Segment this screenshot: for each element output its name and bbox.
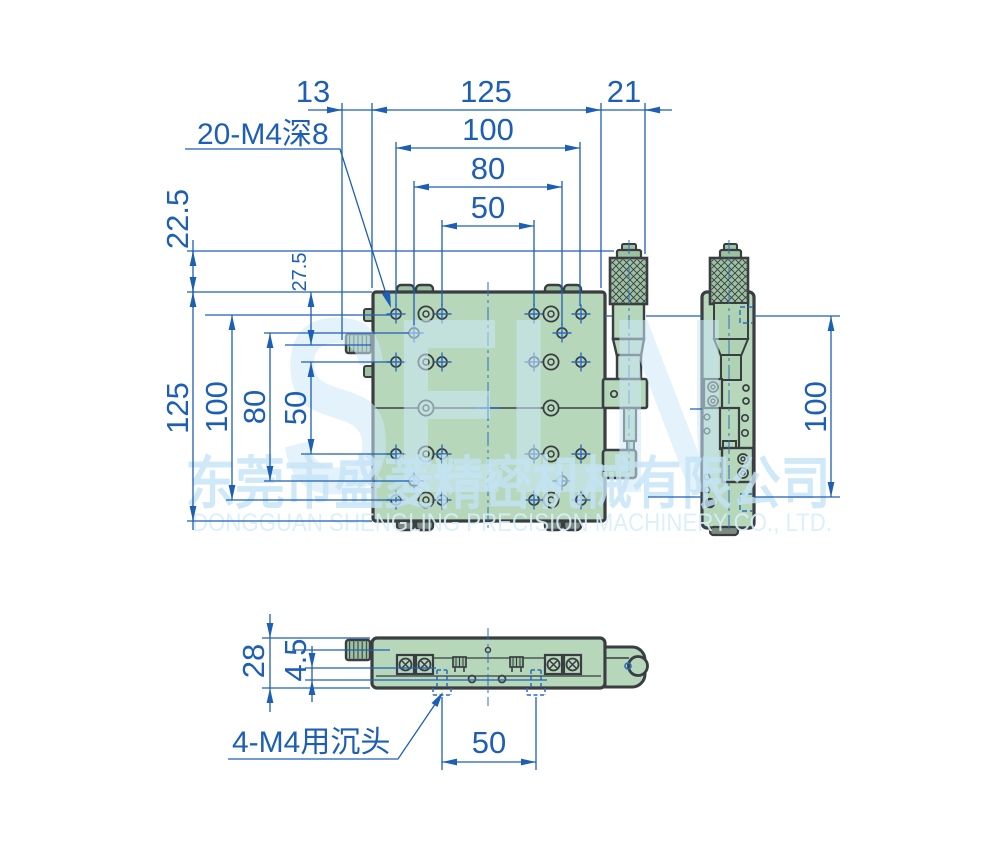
dim-top-13: 13 [296, 74, 330, 109]
callout-bottom-holes: 4-M4用沉头 [232, 726, 390, 759]
dim-left-50: 50 [278, 391, 313, 425]
dim-top-21: 21 [607, 74, 641, 109]
technical-drawing: SELN 东莞市盛菱精密机械有限公司 DONGGUAN SHENGLING PR… [0, 0, 1001, 853]
dim-left-100: 100 [199, 381, 234, 433]
dim-bottom-28: 28 [236, 644, 271, 678]
watermark-company-en: DONGGUAN SHENGLING PRECISION MACHINERY C… [192, 509, 832, 537]
dim-side-100: 100 [798, 381, 833, 433]
watermark-company-cn: 东莞市盛菱精密机械有限公司 [186, 452, 831, 516]
callout-top-holes: 20-M4深8 [197, 118, 329, 151]
dim-left-80: 80 [237, 390, 272, 424]
drawing-canvas: SELN 东莞市盛菱精密机械有限公司 DONGGUAN SHENGLING PR… [0, 0, 1001, 853]
dim-top-125: 125 [460, 74, 512, 109]
dim-left-27-5: 27.5 [289, 253, 311, 292]
dim-top-80: 80 [471, 151, 505, 186]
dim-bottom-4-5: 4.5 [278, 638, 313, 681]
dim-top-50: 50 [471, 190, 505, 225]
bottom-view [292, 628, 648, 706]
dim-top-100: 100 [462, 112, 514, 147]
dim-left-22-5: 22.5 [160, 189, 195, 249]
dim-bottom-50: 50 [472, 725, 506, 760]
dim-left-125: 125 [160, 382, 195, 434]
